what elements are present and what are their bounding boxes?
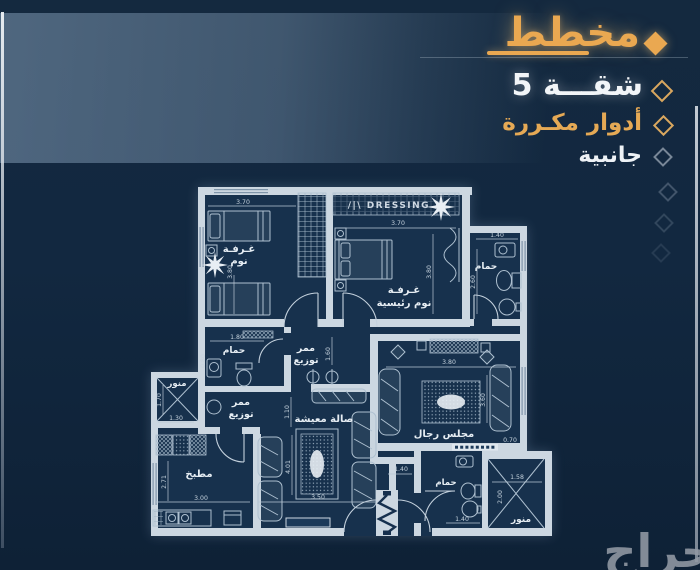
watermark: حراج (603, 524, 700, 570)
left-edge-line (1, 12, 4, 548)
svg-text:3.00: 3.00 (194, 495, 208, 502)
svg-text:نوم رئيسية: نوم رئيسية (377, 298, 432, 309)
plant-icon (427, 193, 455, 221)
svg-text:3.80: 3.80 (442, 359, 456, 366)
svg-text:حمام: حمام (475, 262, 498, 272)
svg-text:3.80: 3.80 (227, 265, 234, 279)
svg-text:2.71: 2.71 (161, 475, 168, 489)
svg-text:3.60: 3.60 (480, 393, 487, 407)
svg-text:توزيع: توزيع (293, 355, 318, 366)
svg-text:1.80: 1.80 (230, 334, 244, 341)
svg-text:4.01: 4.01 (285, 460, 292, 474)
svg-text:0.70: 0.70 (503, 437, 517, 444)
floor-plan: غـرفـة نوم 3.70 3.80 /|\ DRESSING /| (146, 179, 558, 539)
diamond-outline-icon (658, 182, 678, 202)
plant-icon (202, 252, 228, 278)
svg-text:1.70: 1.70 (156, 393, 163, 407)
header-divider-line (420, 57, 688, 58)
svg-text:0.80: 0.80 (200, 354, 207, 368)
apartment-label: شقـــة 5 (512, 68, 643, 103)
poster-root: مخطط شقـــة 5 أدوار مكـررة جانبية (0, 0, 700, 570)
svg-text:ممر: ممر (296, 343, 315, 354)
svg-text:3.80: 3.80 (426, 265, 433, 279)
svg-text:1.40: 1.40 (490, 232, 504, 239)
svg-text:ممر: ممر (231, 397, 250, 408)
svg-text:1.60: 1.60 (325, 347, 332, 361)
svg-text:منور: منور (167, 379, 187, 389)
side-label: جانبية (578, 143, 642, 168)
svg-text:3.70: 3.70 (391, 220, 405, 227)
svg-text:صالة معيشة: صالة معيشة (295, 414, 354, 425)
svg-text:2.60: 2.60 (470, 275, 477, 289)
svg-text:غـرفـة: غـرفـة (388, 285, 421, 296)
svg-text:مطبخ: مطبخ (185, 469, 212, 480)
diamond-outline-icon (654, 213, 674, 233)
svg-text:3.50: 3.50 (311, 494, 325, 501)
right-edge-line (695, 106, 698, 562)
svg-text:مجلس رجال: مجلس رجال (414, 429, 475, 440)
svg-text:حمام: حمام (435, 478, 456, 488)
page-title: مخطط (505, 10, 640, 56)
svg-text:1.40: 1.40 (394, 466, 408, 473)
svg-text:1.10: 1.10 (284, 405, 291, 419)
svg-text:غـرفـة: غـرفـة (223, 244, 256, 255)
svg-text:حمام: حمام (223, 346, 246, 356)
title-underline (487, 51, 589, 55)
floors-label: أدوار مكـررة (502, 110, 642, 136)
svg-text:1.58: 1.58 (510, 474, 524, 481)
svg-text:1.30: 1.30 (169, 415, 183, 422)
svg-text:1.40: 1.40 (455, 516, 469, 523)
svg-text:/|\ DRESSING /|: /|\ DRESSING /| (348, 201, 445, 211)
svg-text:توزيع: توزيع (228, 409, 253, 420)
diamond-outline-icon (651, 243, 671, 263)
svg-text:2.00: 2.00 (497, 490, 504, 504)
svg-text:3.70: 3.70 (236, 199, 250, 206)
svg-text:منور: منور (510, 515, 531, 525)
